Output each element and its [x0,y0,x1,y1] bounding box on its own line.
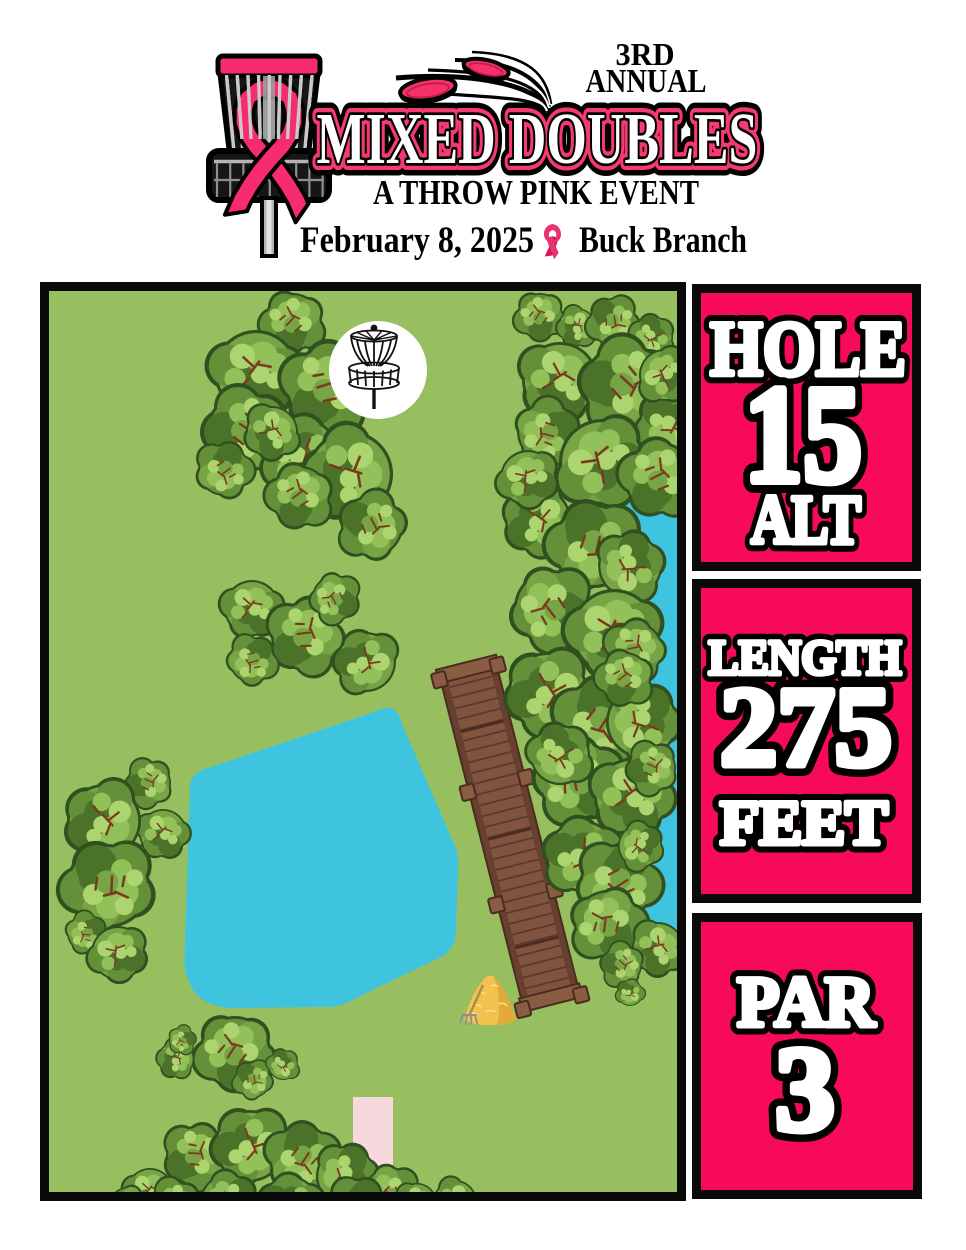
svg-text:Buck Branch: Buck Branch [579,220,747,261]
svg-text:ANNUAL: ANNUAL [586,63,707,100]
svg-text:A THROW PINK EVENT: A THROW PINK EVENT [373,174,699,212]
svg-text:February 8, 2025: February 8, 2025 [300,220,534,261]
svg-text:ALT: ALT [751,482,861,559]
svg-text:275: 275 [720,665,892,790]
svg-text:3: 3 [775,1023,835,1157]
svg-text:MIXED DOUBLES: MIXED DOUBLES [317,98,758,179]
svg-text:FEET: FEET [720,788,888,858]
